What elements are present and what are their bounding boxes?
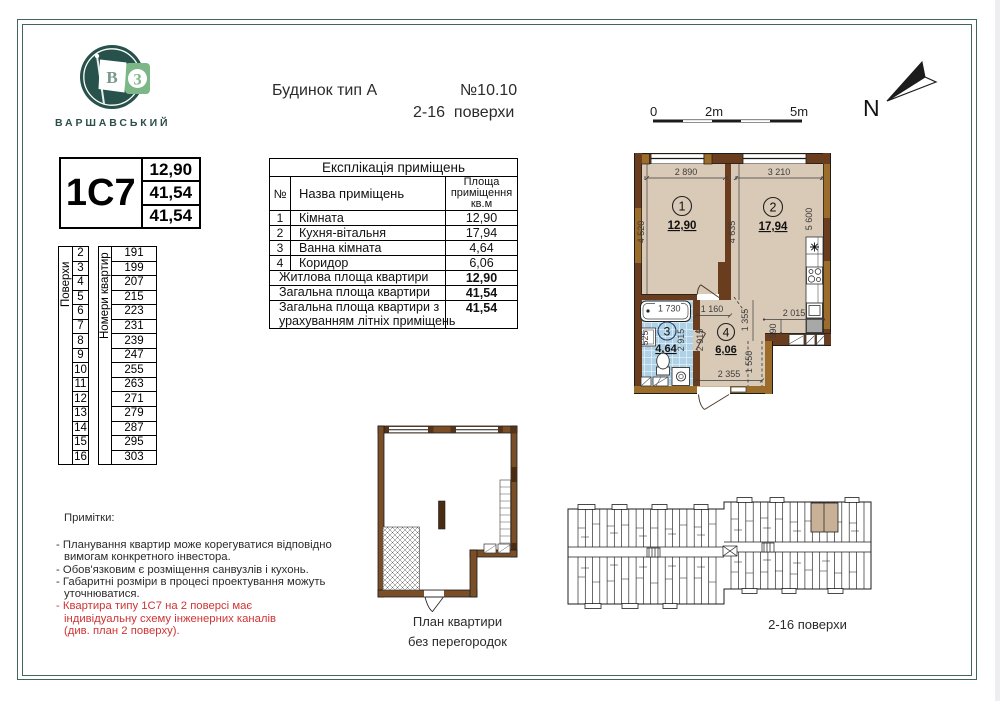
svg-text:4 635: 4 635: [727, 221, 737, 244]
svg-text:2 915: 2 915: [695, 329, 705, 352]
svg-text:5 600: 5 600: [804, 208, 814, 231]
svg-text:17,94: 17,94: [759, 221, 788, 233]
svg-text:3 210: 3 210: [768, 167, 791, 177]
svg-text:2 890: 2 890: [675, 167, 698, 177]
svg-text:1: 1: [679, 200, 686, 214]
svg-text:2 355: 2 355: [718, 369, 741, 379]
svg-text:2 015: 2 015: [783, 308, 806, 318]
svg-text:1 730: 1 730: [658, 304, 681, 314]
svg-text:2 915: 2 915: [676, 329, 686, 352]
svg-text:1 550: 1 550: [744, 351, 754, 374]
svg-text:2: 2: [770, 201, 777, 215]
svg-text:525: 525: [640, 330, 650, 345]
svg-text:6,06: 6,06: [715, 344, 736, 356]
svg-text:4: 4: [723, 326, 730, 340]
svg-text:1 160: 1 160: [701, 304, 724, 314]
svg-text:4 520: 4 520: [636, 221, 646, 244]
svg-text:4,64: 4,64: [655, 343, 677, 355]
svg-text:N: N: [863, 95, 880, 121]
svg-text:0: 0: [650, 104, 657, 119]
svg-text:12,90: 12,90: [668, 220, 697, 232]
svg-text:1 355: 1 355: [740, 309, 750, 332]
svg-text:5m: 5m: [790, 104, 808, 119]
svg-text:2m: 2m: [705, 104, 723, 119]
svg-text:390: 390: [768, 323, 778, 338]
svg-text:3: 3: [664, 325, 671, 339]
